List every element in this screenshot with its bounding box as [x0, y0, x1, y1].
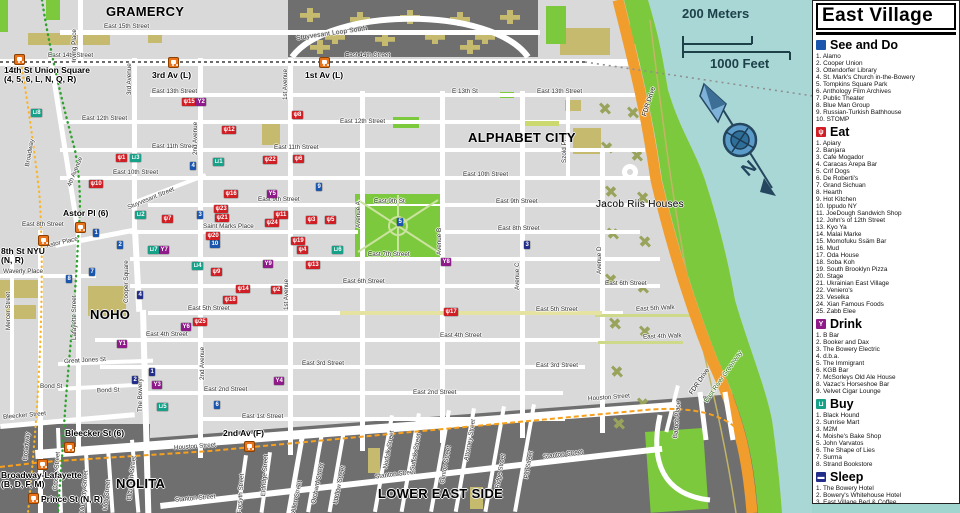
street-label: East 9th Street [496, 198, 538, 205]
legend-item: 18. Soba Koh [816, 259, 956, 266]
area-label: NOHO [90, 307, 130, 322]
legend-panel: East Village See and Do1. Alamo2. Cooper… [812, 0, 960, 504]
map-marker-eat-13: ψ13 [306, 261, 320, 269]
street-label: East 14th Street [345, 52, 390, 59]
map-marker-see-1: 1 [93, 229, 99, 237]
avenue-label: The Bowery [137, 378, 144, 412]
street-label: East 7th Street [368, 251, 410, 258]
subway-station-label: Broadway-Lafayette (B, D, F, M) [1, 471, 82, 489]
avenue-label: Lafayette Street [71, 296, 78, 340]
subway-station-icon [28, 493, 39, 504]
avenue-label: Avenue C [514, 262, 521, 290]
map-marker-eat-7: ψ7 [162, 215, 173, 223]
map-marker-drink-9: Y9 [263, 260, 273, 268]
map-marker-eat-14: ψ14 [236, 285, 250, 293]
map-marker-drink-1: Y1 [117, 340, 127, 348]
street-label: East 4th Street [440, 332, 482, 339]
legend-item: 10. Ippudo NY [816, 203, 956, 210]
legend-item: 8. Vazac's Horseshoe Bar [816, 381, 956, 388]
area-label: GRAMERCY [106, 4, 184, 19]
street-label: East 3rd Street [536, 362, 578, 369]
legend-section-header-eat: ψEat [816, 125, 956, 139]
east-village-map-page: N East 15th StreetEast 14th StreetEast 1… [0, 0, 960, 513]
legend-item: 1. B Bar [816, 332, 956, 339]
map-marker-drink-3: Y3 [152, 381, 162, 389]
map-marker-eat-23: ψ23 [214, 205, 228, 213]
avenue-label: Avenue A [355, 201, 362, 228]
map-marker-drink-7: Y7 [159, 246, 169, 254]
avenue-label: 1st Avenue [282, 69, 289, 100]
street-label: East 1st Street [242, 413, 283, 420]
map-marker-drink-8: Y8 [441, 258, 451, 266]
subway-station-label: 1st Av (L) [305, 71, 343, 80]
area-label: LOWER EAST SIDE [378, 486, 503, 501]
street-label: Waverly Place [3, 268, 43, 275]
map-marker-eat-9: ψ9 [211, 268, 222, 276]
map-marker-see-3: 3 [197, 211, 203, 219]
legend-item: 2. Bowery's Whitehouse Hotel [816, 492, 956, 499]
baruch-streets [657, 392, 733, 500]
subway-station-icon [244, 441, 255, 452]
map-marker-eat-10: ψ10 [89, 180, 103, 188]
legend-section-icon: ψ [816, 127, 826, 137]
map-marker-see-4: 4 [190, 162, 196, 170]
map-marker-drink-6: Y6 [181, 323, 191, 331]
map-marker-eat-17: ψ17 [444, 308, 458, 316]
legend-section-header-buy: ⊔Buy [816, 397, 956, 411]
legend-item: 12. John's of 12th Street [816, 217, 956, 224]
map-marker-eat-12: ψ12 [222, 126, 236, 134]
street-label: East 8th Street [22, 221, 64, 228]
scale-feet-label: 1000 Feet [710, 56, 769, 71]
legend-item: 17. Oda House [816, 252, 956, 259]
map-marker-buy-4: ⊔4 [192, 262, 203, 270]
map-marker-eat-11: ψ11 [274, 211, 288, 219]
subway-station-icon [14, 54, 25, 65]
legend-section-title: See and Do [830, 38, 898, 52]
legend-item: 1. Apiary [816, 140, 956, 147]
map-marker-eat-5: ψ5 [325, 216, 336, 224]
subway-station-label: 2nd Av (F) [223, 429, 264, 438]
avenue-label: 2nd Avenue [199, 347, 206, 380]
map-marker-drink-2: Y2 [196, 98, 206, 106]
street-label: East 4th Walk [643, 332, 682, 340]
legend-section-title: Sleep [830, 470, 863, 484]
legend-item: 9. Hot Kitchen [816, 196, 956, 203]
legend-item: 3. The Bowery Electric [816, 346, 956, 353]
legend-item: 23. Veselka [816, 294, 956, 301]
area-label: ALPHABET CITY [468, 130, 576, 145]
avenue-label: 1st Avenue [283, 279, 290, 310]
street-label: East 5th Street [536, 306, 578, 313]
legend-item: 19. South Brooklyn Pizza [816, 266, 956, 273]
subway-station-icon [38, 235, 49, 246]
avenue-label: Avenue D [596, 246, 603, 274]
subway-station-label: Bleecker St (6) [65, 429, 124, 438]
street-label: East 13th Street [152, 88, 197, 95]
map-marker-buy-2: ⊔2 [135, 211, 146, 219]
legend-item: 9. Velvet Cigar Lounge [816, 388, 956, 395]
subway-station-label: 14th St Union Square (4, 5, 6, L, N, Q, … [4, 66, 90, 84]
map-marker-eat-6: ψ6 [293, 155, 304, 163]
legend-item: 7. Surma [816, 454, 956, 461]
map-marker-buy-7: ⊔7 [148, 246, 159, 254]
map-marker-eat-2: ψ2 [271, 286, 282, 294]
legend-item: 3. Ottendorfer Library [816, 67, 956, 74]
legend-item: 5. John Varvatos [816, 440, 956, 447]
subway-station-label: 3rd Av (L) [152, 71, 191, 80]
avenue-label: 2nd Avenue [192, 122, 199, 155]
legend-item: 8. Blue Man Group [816, 102, 956, 109]
legend-item: 20. Stage [816, 273, 956, 280]
map-marker-see-10: 10 [210, 240, 220, 248]
legend-item: 15. Momofuku Ssäm Bar [816, 238, 956, 245]
avenue-label: Cooper Square [123, 260, 130, 303]
street-label: East 12th Street [340, 118, 385, 125]
map-marker-see-6: 6 [214, 401, 220, 409]
map-marker-eat-21: ψ21 [215, 214, 229, 222]
legend-item: 7. Public Theater [816, 95, 956, 102]
scale-meters-label: 200 Meters [682, 6, 749, 21]
map-marker-sleep-2: 2 [132, 376, 138, 384]
legend-item: 4. Caracas Arepa Bar [816, 161, 956, 168]
map-marker-drink-4: Y4 [274, 377, 284, 385]
legend-item: 11. JoeDough Sandwich Shop [816, 210, 956, 217]
legend-item: 4. Moishe's Bake Shop [816, 433, 956, 440]
legend-item: 3. M2M [816, 426, 956, 433]
legend-section-icon [816, 40, 826, 50]
street-label: East 9th Street [258, 196, 300, 203]
map-marker-sleep-1: 1 [149, 368, 155, 376]
map-marker-see-8: 8 [66, 275, 72, 283]
map-marker-eat-24: ψ24 [265, 219, 279, 227]
street-label: East 2nd Street [413, 389, 456, 396]
street-label: E 13th St [452, 88, 478, 95]
area-label: Jacob Riis Houses [596, 199, 684, 210]
street-label: East 3rd Street [302, 360, 344, 367]
legend-item: 3. Cafe Mogador [816, 154, 956, 161]
street-label: East 8th Street [498, 225, 540, 232]
legend-item: 5. Tompkins Square Park [816, 81, 956, 88]
map-marker-eat-25: ψ25 [193, 318, 207, 326]
street-label: East 6th Street [605, 280, 647, 287]
street-label: Saint Marks Place [203, 223, 254, 230]
legend-item: 14. Malai Marke [816, 231, 956, 238]
map-marker-sleep-4: 4 [137, 291, 143, 299]
avenue-label: 3rd Avenue [126, 63, 133, 95]
street-label: East 13th Street [537, 88, 582, 95]
legend-section-title: Buy [830, 397, 854, 411]
subway-station-label: 8th St NYU (N, R) [1, 247, 45, 265]
legend-item: 13. Kyo Ya [816, 224, 956, 231]
roundabout-center [627, 169, 633, 175]
legend-item: 5. Crif Dogs [816, 168, 956, 175]
map-marker-sleep-3: 3 [524, 241, 530, 249]
legend-item: 8. Strand Bookstore [816, 461, 956, 468]
street-label: Bond St [97, 387, 120, 395]
subway-station-icon [37, 459, 48, 470]
street-label: East 5th Street [188, 305, 230, 312]
legend-item: 2. Banjara [816, 147, 956, 154]
legend-item: 24. Xian Famous Foods [816, 301, 956, 308]
subway-station-icon [64, 442, 75, 453]
avenue-label: Mercer Street [5, 292, 12, 330]
map-marker-buy-3: ⊔3 [130, 154, 141, 162]
legend-item: 4. St. Mark's Church in-the-Bowery [816, 74, 956, 81]
street-label: Bond St [40, 383, 62, 390]
subway-station-icon [168, 57, 179, 68]
street-label: East 2nd Street [204, 386, 247, 393]
map-marker-eat-19: ψ19 [291, 237, 305, 245]
street-label: East 11th Street [274, 144, 319, 151]
map-marker-eat-20: ψ20 [206, 232, 220, 240]
legend-item: 2. Cooper Union [816, 60, 956, 67]
street-label: East 15th Street [104, 23, 149, 30]
map-marker-eat-3: ψ3 [306, 216, 317, 224]
legend-item: 6. Anthology Film Archives [816, 88, 956, 95]
map-marker-eat-16: ψ16 [224, 190, 238, 198]
legend-title: East Village [816, 3, 956, 30]
legend-item: 6. The Shape of Lies [816, 447, 956, 454]
map-marker-eat-8: ψ8 [292, 111, 303, 119]
legend-item: 10. STOMP [816, 116, 956, 123]
subway-station-label: Astor Pl (6) [63, 209, 108, 218]
legend-item: 21. Ukrainian East Village [816, 280, 956, 287]
legend-item: 1. Black Hound [816, 412, 956, 419]
legend-item: 7. Grand Sichuan [816, 182, 956, 189]
map-marker-eat-18: ψ18 [223, 296, 237, 304]
legend-item: 4. d.b.a. [816, 353, 956, 360]
map-marker-see-9: 9 [316, 183, 322, 191]
map-marker-drink-5: Y5 [267, 190, 277, 198]
legend-item: 1. Alamo [816, 53, 956, 60]
legend-item: 22. Veniero's [816, 287, 956, 294]
legend-item: 1. The Bowery Hotel [816, 485, 956, 492]
legend-item: 7. McSorleys Old Ale House [816, 374, 956, 381]
legend-bottom-strip [812, 504, 960, 513]
legend-item: 2. Sunrise Mart [816, 419, 956, 426]
legend-item: 5. The Immigrant [816, 360, 956, 367]
legend-item: 25. Zabb Elee [816, 308, 956, 315]
street-label: East 12th Street [82, 115, 127, 122]
legend-section-title: Eat [830, 125, 849, 139]
map-marker-buy-6: ⊔6 [332, 246, 343, 254]
map-marker-eat-22: ψ22 [263, 156, 277, 164]
legend-sections: See and Do1. Alamo2. Cooper Union3. Otte… [816, 38, 956, 504]
map-marker-eat-4: ψ4 [297, 246, 308, 254]
legend-item: 6. KGB Bar [816, 367, 956, 374]
street-label: East 10th Street [463, 171, 508, 178]
legend-section-icon: ▬ [816, 472, 826, 482]
legend-item: 9. Russian-Turkish Bathhouse [816, 109, 956, 116]
legend-item: 2. Booker and Dax [816, 339, 956, 346]
subway-station-label: Prince St (N, R) [41, 495, 103, 504]
legend-item: 6. De Roberti's [816, 175, 956, 182]
map-marker-buy-8: ⊔8 [31, 109, 42, 117]
map-marker-see-2: 2 [117, 241, 123, 249]
legend-section-icon: Y [816, 319, 826, 329]
map-marker-see-7: 7 [89, 268, 95, 276]
legend-title-rule [816, 32, 956, 35]
legend-section-header-sleep: ▬Sleep [816, 470, 956, 484]
map-marker-buy-1: ⊔1 [213, 158, 224, 166]
legend-section-icon: ⊔ [816, 399, 826, 409]
street-label: East 10th Street [113, 169, 158, 176]
legend-section-title: Drink [830, 317, 862, 331]
map-marker-eat-15: ψ15 [182, 98, 196, 106]
legend-item: 8. Hearth [816, 189, 956, 196]
street-label: East 11th Street [152, 143, 197, 150]
avenue-label: Avenue B [436, 228, 443, 255]
map-marker-eat-1: ψ1 [116, 154, 127, 162]
legend-item: 16. Mud [816, 245, 956, 252]
street-label: East 6th Street [343, 278, 385, 285]
street-label: East 4th Street [146, 331, 188, 338]
street-label: East 9th St [374, 198, 405, 205]
subway-station-icon [319, 57, 330, 68]
avenue-label: Irving Place [71, 29, 78, 62]
subway-station-icon [75, 222, 86, 233]
stuyvesant-loop-road [292, 19, 528, 57]
map-marker-see-5: 5 [397, 218, 403, 226]
map-marker-buy-5: ⊔5 [157, 403, 168, 411]
legend-section-header-drink: YDrink [816, 317, 956, 331]
legend-section-header-see-and-do: See and Do [816, 38, 956, 52]
area-label: NOLITA [116, 476, 165, 491]
